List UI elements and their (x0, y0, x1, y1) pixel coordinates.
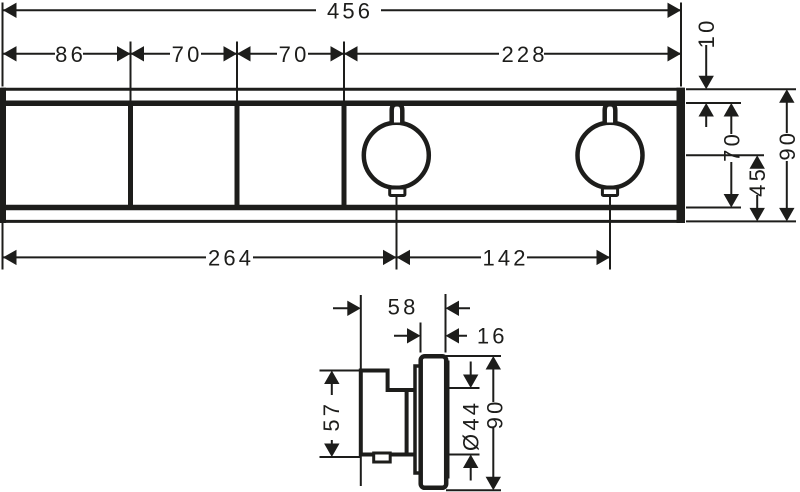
svg-text:58: 58 (388, 295, 419, 320)
svg-text:70: 70 (279, 42, 310, 67)
svg-text:16: 16 (477, 324, 508, 349)
svg-text:264: 264 (208, 246, 254, 271)
svg-text:57: 57 (319, 401, 344, 432)
svg-text:90: 90 (775, 130, 800, 161)
svg-text:70: 70 (172, 42, 203, 67)
svg-text:45: 45 (745, 166, 770, 197)
svg-text:456: 456 (327, 0, 373, 24)
svg-text:10: 10 (694, 17, 719, 48)
svg-text:228: 228 (501, 42, 547, 67)
svg-text:Ø44: Ø44 (459, 400, 484, 451)
svg-text:86: 86 (55, 42, 86, 67)
svg-text:142: 142 (482, 246, 528, 271)
svg-text:90: 90 (483, 398, 508, 429)
svg-text:70: 70 (719, 131, 744, 162)
